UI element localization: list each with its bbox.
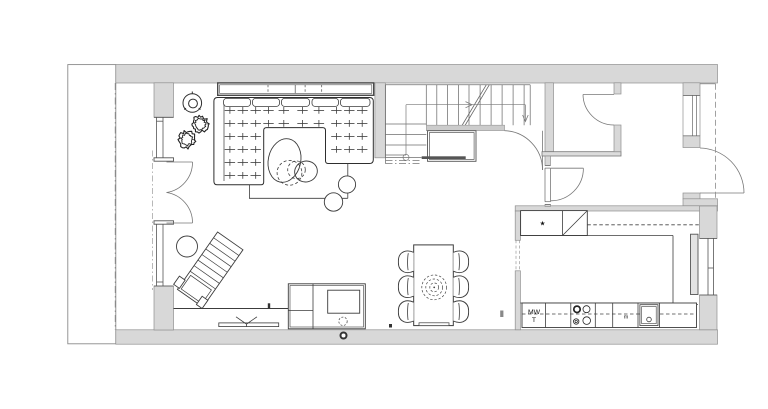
svg-text:MW: MW — [528, 309, 541, 316]
svg-text:★: ★ — [540, 220, 546, 228]
svg-text:m: m — [624, 315, 629, 321]
svg-text:T: T — [532, 317, 536, 324]
